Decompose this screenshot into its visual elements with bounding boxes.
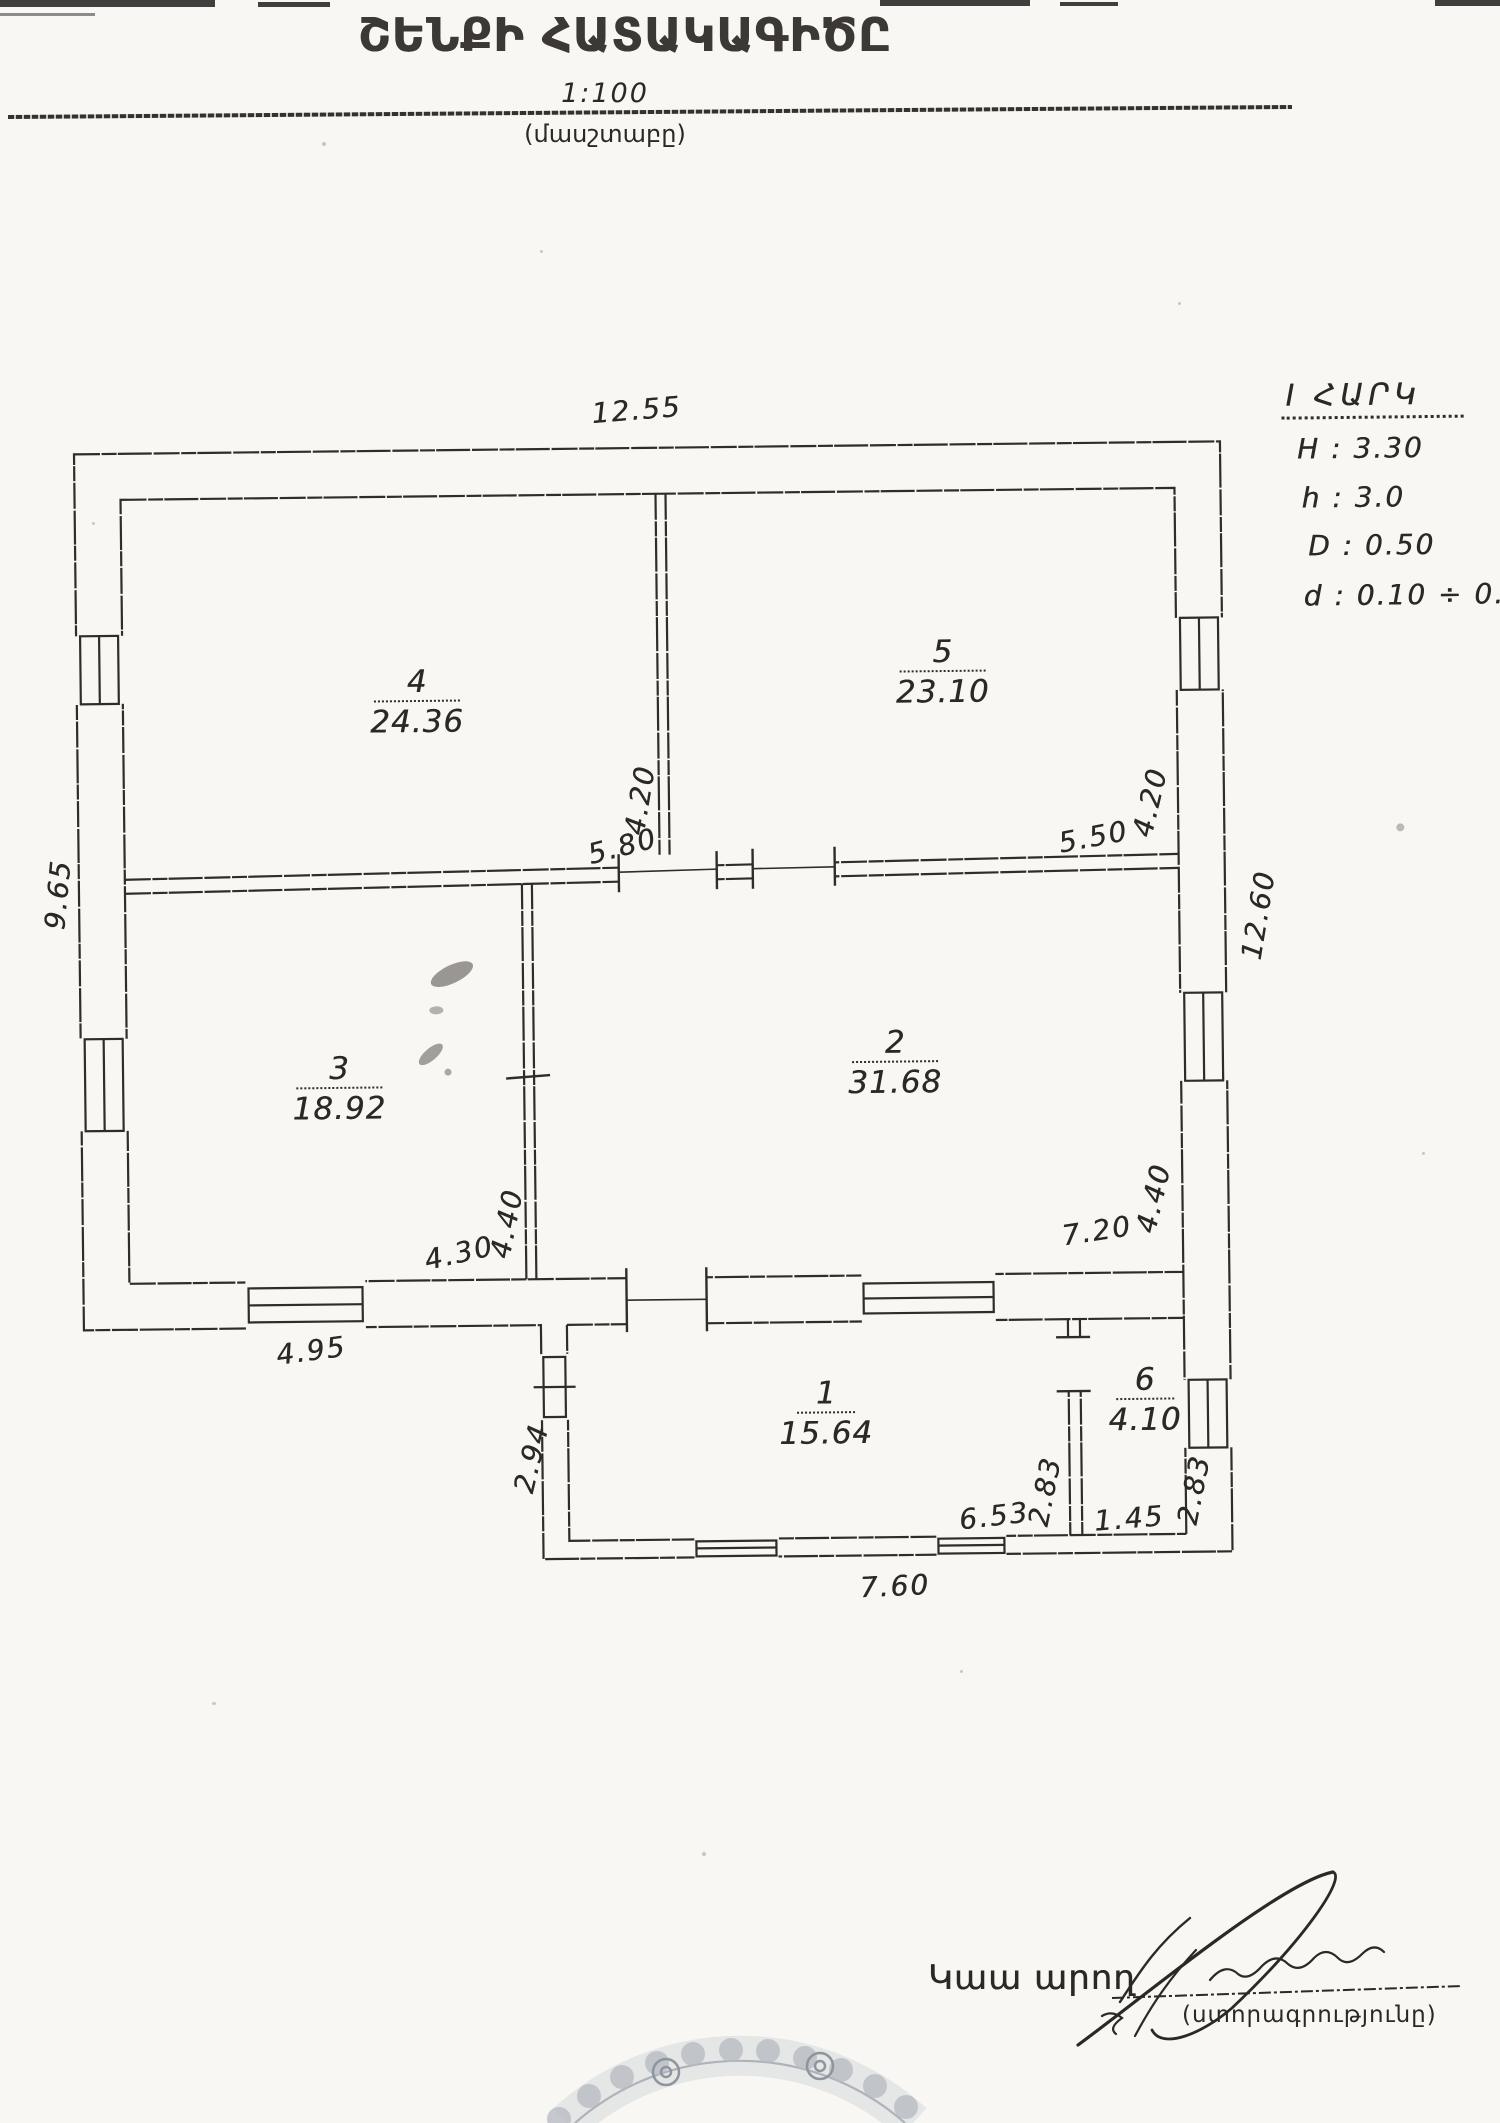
paper-speck xyxy=(322,142,326,146)
signature-and-stamp xyxy=(0,0,1500,2123)
paper-speck xyxy=(960,1670,963,1673)
paper-speck xyxy=(1422,1152,1425,1155)
paper-speck xyxy=(212,1702,216,1705)
signature-caption: (ստորագրությունը) xyxy=(1182,2002,1437,2028)
paper-speck xyxy=(702,1852,706,1856)
paper-speck xyxy=(1178,302,1181,305)
stamp-seal xyxy=(547,2038,918,2123)
scanned-floor-plan-page: ՇԵՆՔԻ ՀԱՏԱԿԱԳԻԾԸ 1:100 (մասշտաբը) xyxy=(0,0,1500,2123)
paper-speck xyxy=(540,250,543,253)
paper-speck xyxy=(92,522,95,525)
